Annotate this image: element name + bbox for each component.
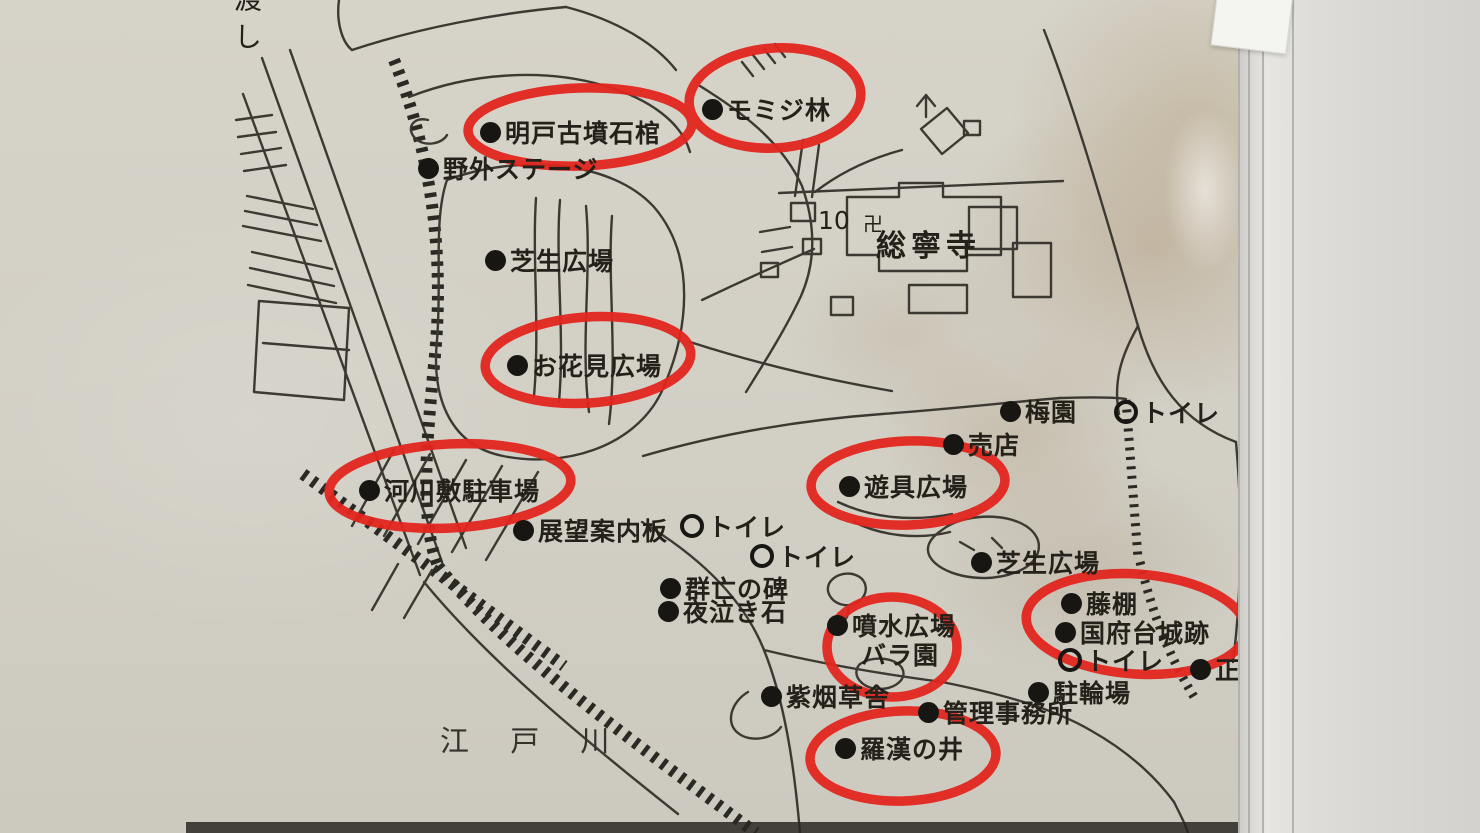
map-label-seimon: 正 [1190, 651, 1241, 687]
map-label-text: バラ園 [861, 636, 939, 672]
map-label-text: 総寧寺 [876, 221, 981, 265]
poi-dot-icon [418, 158, 439, 179]
poi-dot-icon [761, 686, 782, 707]
map-label-text: 羅漢の井 [860, 730, 964, 766]
map-label-kanri-jimusho: 管理事務所 [918, 694, 1073, 730]
map-label-baiten: 売店 [943, 426, 1020, 462]
map-label-yugu-hiroba: 遊具広場 [839, 468, 968, 504]
map-label-text: 野外ステージ [443, 150, 599, 186]
map-label-yonaki-ishi: 夜泣き石 [658, 593, 787, 629]
map-label-plot-number: 10 [818, 206, 850, 235]
tape-corner [1211, 0, 1294, 54]
poi-dot-icon [1055, 622, 1076, 643]
map-label-toilet-3: トイレ [750, 538, 856, 574]
poi-dot-icon [971, 552, 992, 573]
map-label-text: 芝生広場 [510, 242, 614, 278]
poi-dot-icon [513, 520, 534, 541]
sleeve-line [1248, 0, 1250, 833]
map-label-akedo-kofun-sekkan: 明戸古墳石棺 [480, 114, 661, 150]
poi-dot-icon [918, 702, 939, 723]
map-label-text: 管理事務所 [943, 694, 1073, 730]
sleeve-line [1292, 0, 1294, 833]
map-label-text: トイレ [778, 538, 856, 574]
map-label-text: 芝生広場 [996, 544, 1100, 580]
poi-dot-icon [1061, 593, 1082, 614]
map-label-tenbo-annaiban: 展望案内板 [513, 512, 668, 548]
map-label-text: 梅園 [1025, 393, 1077, 429]
poi-dot-icon [835, 738, 856, 759]
poi-dot-icon [658, 601, 679, 622]
map-label-text: 売店 [968, 426, 1020, 462]
poi-dot-icon [485, 250, 506, 271]
map-label-shibafu-hiroba-1: 芝生広場 [485, 242, 614, 278]
map-label-ohanami-hiroba: お花見広場 [507, 347, 662, 383]
map-label-text: 江 戸 川 [440, 718, 625, 760]
plastic-sleeve-edge [1238, 0, 1480, 833]
map-label-text: 夜泣き石 [683, 593, 787, 629]
map-label-toilet-4: トイレ [1058, 642, 1164, 678]
toilet-ring-icon [1114, 400, 1138, 424]
map-label-text: 遊具広場 [864, 468, 968, 504]
map-label-text: 10 [818, 206, 850, 235]
toilet-ring-icon [1058, 648, 1082, 672]
map-label-text: モミジ林 [727, 91, 831, 127]
poi-dot-icon [480, 122, 501, 143]
sleeve-line [1262, 0, 1264, 833]
poi-dot-icon [1000, 401, 1021, 422]
map-label-kasenjiki-parking: 河川敷駐車場 [359, 472, 540, 508]
map-label-text: 河川敷駐車場 [384, 472, 540, 508]
poi-dot-icon [827, 615, 848, 636]
map-label-umeen: 梅園 [1000, 393, 1077, 429]
map-label-rakan-no-i: 羅漢の井 [835, 730, 964, 766]
poi-dot-icon [702, 99, 723, 120]
park-map-photo: 渡し明戸古墳石棺モミジ林野外ステージ芝生広場10卍総寧寺お花見広場梅園トイレ売店… [0, 0, 1480, 833]
toilet-ring-icon [680, 514, 704, 538]
map-label-text: 展望案内板 [538, 512, 668, 548]
paper-bottom-edge [186, 822, 1238, 833]
poi-dot-icon [1190, 659, 1211, 680]
poi-dot-icon [839, 476, 860, 497]
map-label-text: 渡し [226, 0, 266, 60]
map-label-text: トイレ [1142, 394, 1220, 430]
poi-dot-icon [507, 355, 528, 376]
map-label-edogawa-river: 江 戸 川 [440, 718, 625, 760]
map-label-sonei-ji: 総寧寺 [876, 221, 981, 265]
map-label-text: トイレ [1086, 642, 1164, 678]
map-label-text: 紫烟草舎 [786, 678, 890, 714]
map-label-bara-en: バラ園 [861, 636, 939, 672]
map-label-ferry: 渡し [226, 0, 266, 60]
poi-dot-icon [943, 434, 964, 455]
map-label-text: 明戸古墳石棺 [505, 114, 661, 150]
toilet-ring-icon [750, 544, 774, 568]
map-label-shien-sosha: 紫烟草舎 [761, 678, 890, 714]
map-label-text: お花見広場 [532, 347, 662, 383]
poi-dot-icon [359, 480, 380, 501]
map-label-momiji-grove: モミジ林 [702, 91, 831, 127]
map-label-toilet-1: トイレ [1114, 394, 1220, 430]
map-label-yagai-stage: 野外ステージ [418, 150, 599, 186]
map-label-shibafu-hiroba-2: 芝生広場 [971, 544, 1100, 580]
